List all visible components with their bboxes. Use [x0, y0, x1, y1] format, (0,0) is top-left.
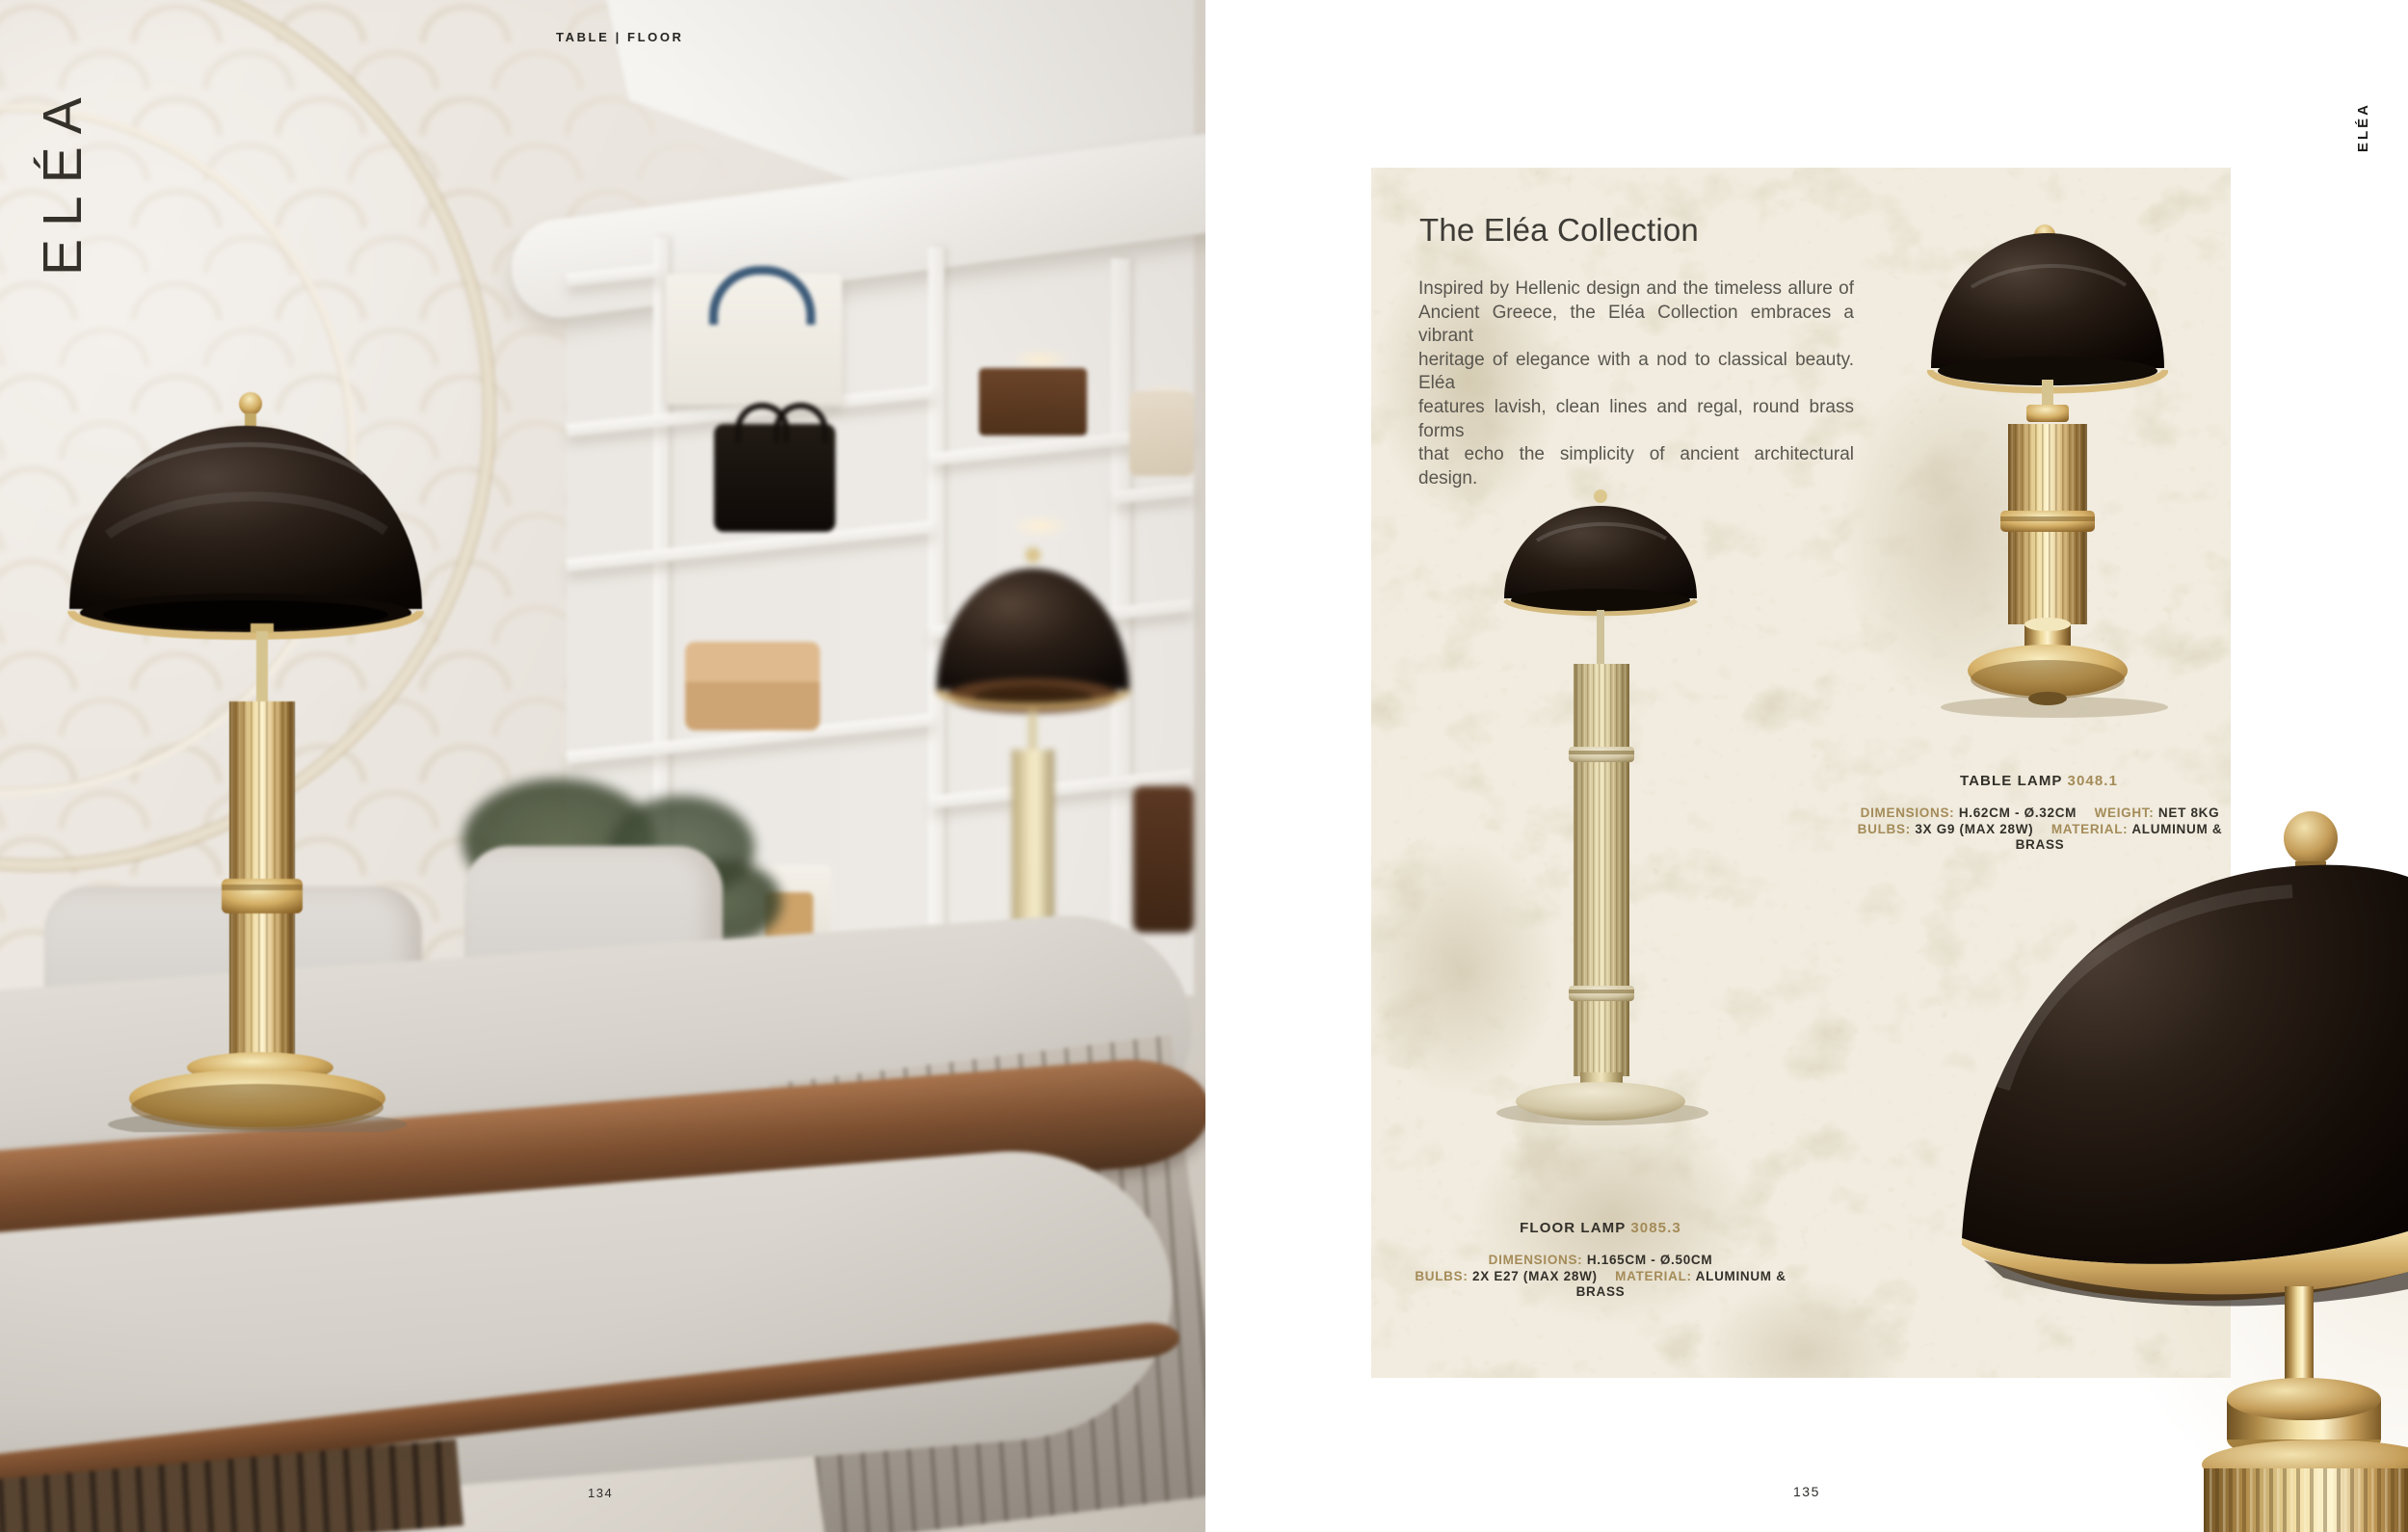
material-label: MATERIAL:: [2051, 822, 2129, 836]
table-lamp-specs: DIMENSIONS: H.62CM - Ø.32CM WEIGHT: NET …: [1838, 806, 2242, 854]
dimensions-label: DIMENSIONS:: [1861, 806, 1955, 820]
page-number-right: 135: [1793, 1484, 1820, 1499]
table-lamp-code: 3048.1: [2068, 773, 2118, 789]
collection-description: Inspired by Hellenic design and the time…: [1418, 277, 1854, 490]
floor-lamp-specs: DIMENSIONS: H.165CM - Ø.50CM BULBS: 2X E…: [1398, 1253, 1803, 1301]
lifestyle-photo: TABLE | FLOOR ELÉA 134: [0, 0, 1205, 1532]
floor-lamp-product-image: [1489, 487, 1720, 1132]
table-lamp-name: TABLE LAMP: [1960, 773, 2062, 789]
table-lamp-product-image: [1927, 220, 2168, 721]
floor-lamp-specs-line2: BULBS: 2X E27 (MAX 28W) MATERIAL: ALUMIN…: [1398, 1269, 1803, 1301]
collection-title: The Eléa Collection: [1419, 212, 1699, 249]
description-line: features lavish, clean lines and regal, …: [1418, 396, 1854, 443]
weight-value: NET 8KG: [2158, 806, 2219, 820]
category-header: TABLE | FLOOR: [556, 30, 684, 44]
bulbs-label: BULBS:: [1415, 1269, 1468, 1283]
bulbs-value: 3X G9 (MAX 28W): [1915, 822, 2033, 836]
dimensions-label: DIMENSIONS:: [1489, 1253, 1583, 1267]
floor-lamp-label: FLOOR LAMP 3085.3: [1408, 1220, 1793, 1236]
description-line: that echo the simplicity of ancient arch…: [1418, 443, 1854, 490]
dimensions-value: H.62CM - Ø.32CM: [1959, 806, 2077, 820]
floor-lamp-name: FLOOR LAMP: [1520, 1220, 1626, 1236]
table-lamp-label: TABLE LAMP 3048.1: [1846, 773, 2232, 789]
brand-vertical-left: ELÉA: [31, 73, 94, 276]
table-lamp-specs-line1: DIMENSIONS: H.62CM - Ø.32CM WEIGHT: NET …: [1838, 806, 2242, 822]
dimensions-value: H.165CM - Ø.50CM: [1587, 1253, 1712, 1267]
bulbs-label: BULBS:: [1858, 822, 1911, 836]
foreground-table-lamp: [58, 390, 463, 1132]
floor-lamp-code: 3085.3: [1630, 1220, 1680, 1236]
description-line: Inspired by Hellenic design and the time…: [1418, 277, 1854, 302]
brand-vertical-right: ELÉA: [2355, 94, 2371, 152]
table-lamp-specs-line2: BULBS: 3X G9 (MAX 28W) MATERIAL: ALUMINU…: [1838, 822, 2242, 854]
description-line: Ancient Greece, the Eléa Collection embr…: [1418, 302, 1854, 349]
page-number-left: 134: [588, 1486, 613, 1500]
material-label: MATERIAL:: [1615, 1269, 1692, 1283]
bulbs-value: 2X E27 (MAX 28W): [1472, 1269, 1598, 1283]
description-line: heritage of elegance with a nod to class…: [1418, 349, 1854, 396]
big-lamp-closeup-image: [1945, 800, 2408, 1532]
floor-lamp-specs-line1: DIMENSIONS: H.165CM - Ø.50CM: [1398, 1253, 1803, 1269]
catalog-spread: TABLE | FLOOR ELÉA 134 The El: [0, 0, 2408, 1532]
weight-label: WEIGHT:: [2095, 806, 2155, 820]
